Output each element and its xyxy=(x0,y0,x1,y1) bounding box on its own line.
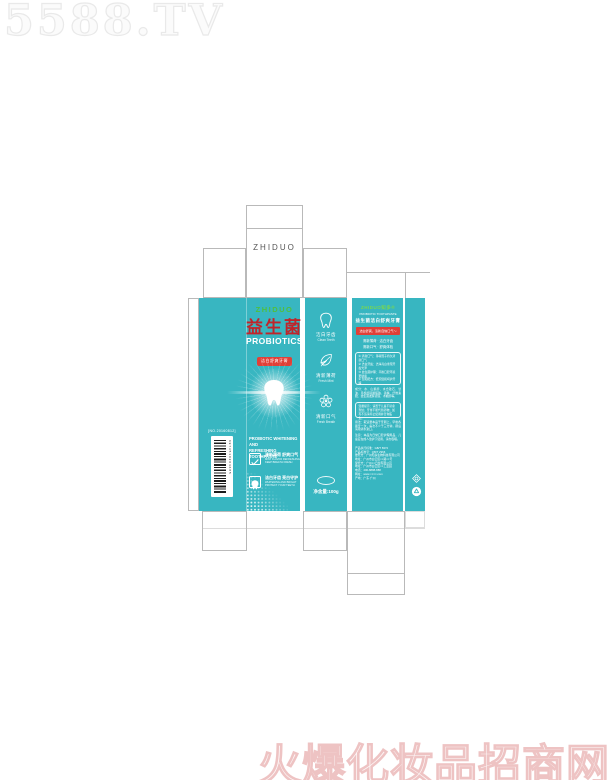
ingredients-text: 成分：水、山梨醇、水合硅石、甘油、月桂醇硫酸酯钠、香精、纤维素胶、益生菌发酵滤液… xyxy=(355,388,401,399)
watermark-top: 5588.TV xyxy=(4,0,225,46)
back-title-en: PROBIOTIC TOOTHPASTE xyxy=(354,312,402,316)
watermark-bottom: 火爆化妆品招商网 xyxy=(258,731,610,780)
bottom-tuck-flap xyxy=(347,511,405,595)
back-feature-point: ④ 温和配方：低泡温和呵护牙龈 xyxy=(359,378,398,386)
net-weight: 净含量:100g xyxy=(305,489,347,495)
fold-line xyxy=(347,272,430,273)
top-flap-brand-label: ZHIDUO xyxy=(246,243,303,252)
side-item-en: Clean Teeth xyxy=(305,338,347,342)
back-slogan: 清新薄荷 · 洁白牙齿 xyxy=(354,338,402,343)
cut-line xyxy=(405,272,406,298)
feature-en: MINT FLAVOR REFRESHING KEEP BREATH FRESH xyxy=(265,458,301,465)
tooth-icon xyxy=(318,311,334,330)
back-feature-box: ① 清新口气：薄荷因子持久清新口气 ② 洁白牙齿：洁净亮白重现牙齿光泽 ③ 益生… xyxy=(355,352,401,385)
flower-icon xyxy=(318,393,334,410)
barcode-bars xyxy=(214,440,226,494)
bottom-side-flap-right xyxy=(303,511,347,551)
seal-icon xyxy=(411,473,422,484)
recycle-icon xyxy=(411,486,422,497)
top-side-flap-left xyxy=(203,248,246,298)
caution-text: 注意：本品为日常口腔护理用品，儿童应在成人监护下使用，请勿吞咽。 xyxy=(355,434,401,441)
back-brand: ZHIDUO知多® xyxy=(354,305,402,311)
bottom-side-flap-left xyxy=(202,511,247,551)
product-title-en: PROBIOTICS xyxy=(246,336,303,346)
front-description-line1: PROBIOTIC WHITENING AND xyxy=(249,436,301,448)
glue-flap xyxy=(188,298,199,511)
product-title-cn: 益生菌 xyxy=(246,313,303,338)
back-red-banner: 洁白舒爽，清新自信口气～ xyxy=(356,327,400,335)
top-side-flap-right xyxy=(303,248,347,298)
fold-line xyxy=(403,298,405,511)
side-item-en: Fresh Breath xyxy=(305,420,347,424)
tips-box: 温馨提示：请置于儿童不易拿到处；牙膏不能代替药物；如有不适请停止使用并咨询医生。 xyxy=(355,402,401,418)
leaf-check-icon xyxy=(249,453,261,465)
fold-line xyxy=(347,573,405,574)
oval-stamp-icon xyxy=(317,476,335,485)
bottom-glue-tab xyxy=(405,511,425,528)
side-item-en: Fresh Mint xyxy=(305,379,347,383)
back-slogan: 清新口气 · 舒爽体验 xyxy=(354,344,402,349)
page: 5588.TV 火爆化妆品招商网 ZHIDUO [NO.20160812] 69… xyxy=(0,0,612,780)
leaf-icon xyxy=(318,352,334,369)
manufacturer-info: 产品执行标准：GB/T 8372 产品标准号：QB/T 2966 委托方：广州知… xyxy=(355,447,401,480)
halftone-dots-decoration xyxy=(246,472,288,511)
fold-line xyxy=(246,228,303,229)
usage-text: 用法：取适量本品于牙刷上，早晚各刷牙一次，每次不少于三分钟，刷后请用清水漱口。 xyxy=(355,421,401,432)
barcode-number: 6973510204685 xyxy=(227,440,232,494)
tooth-illustration xyxy=(261,377,287,409)
back-title-cn: 益生菌洁白舒爽牙膏 xyxy=(354,318,402,324)
